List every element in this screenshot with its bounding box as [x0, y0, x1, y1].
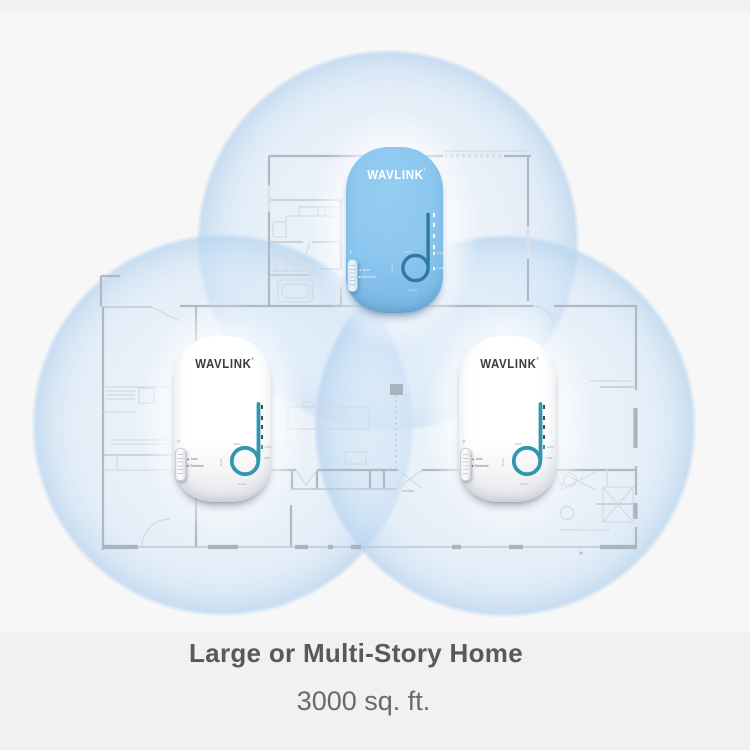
svg-text:Reset: Reset — [390, 265, 394, 273]
svg-text:Power: Power — [520, 482, 529, 486]
svg-text:Power: Power — [409, 288, 418, 292]
svg-text:WPS: WPS — [404, 250, 411, 254]
svg-text:WPS: WPS — [233, 442, 240, 446]
svg-text:WPS: WPS — [515, 442, 522, 446]
svg-text:Reset: Reset — [219, 458, 223, 466]
svg-text:Reset: Reset — [501, 458, 505, 466]
svg-text:Power: Power — [238, 482, 247, 486]
